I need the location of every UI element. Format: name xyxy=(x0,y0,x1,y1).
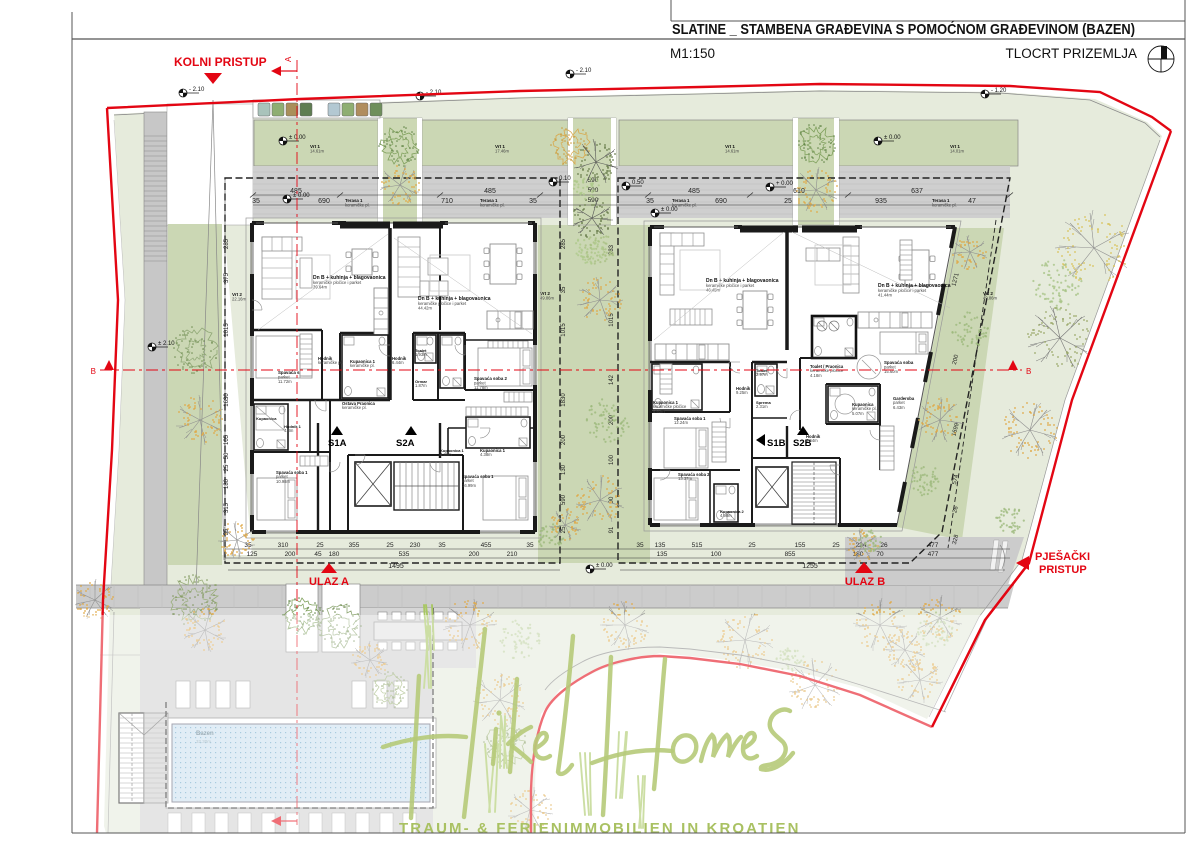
svg-text:355: 355 xyxy=(349,542,360,549)
svg-text:M1:150: M1:150 xyxy=(670,46,715,61)
svg-text:535: 535 xyxy=(399,551,410,558)
svg-text:- 2.10: - 2.10 xyxy=(189,87,205,93)
svg-text:± 0.00: ± 0.00 xyxy=(884,135,901,141)
svg-text:B: B xyxy=(1026,367,1031,376)
svg-text:35: 35 xyxy=(252,198,260,205)
svg-text:10.98m: 10.98m xyxy=(276,479,290,484)
svg-text:200: 200 xyxy=(469,551,480,558)
svg-text:690: 690 xyxy=(318,198,330,205)
svg-text:35: 35 xyxy=(526,542,534,549)
svg-text:± 0.00: ± 0.00 xyxy=(289,135,306,141)
svg-text:± 2.10: ± 2.10 xyxy=(158,341,175,347)
svg-text:1015: 1015 xyxy=(561,323,567,337)
svg-text:855: 855 xyxy=(785,551,796,558)
svg-text:47: 47 xyxy=(968,198,976,205)
svg-text:485: 485 xyxy=(484,188,496,195)
svg-text:25: 25 xyxy=(748,542,756,549)
svg-text:1015: 1015 xyxy=(609,313,615,327)
svg-text:25: 25 xyxy=(832,542,840,549)
svg-text:375: 375 xyxy=(224,272,230,283)
svg-text:710: 710 xyxy=(441,198,453,205)
svg-text:B: B xyxy=(91,367,96,376)
svg-text:35: 35 xyxy=(646,198,654,205)
svg-text:KOLNI PRISTUP: KOLNI PRISTUP xyxy=(174,55,267,69)
svg-text:1.87m: 1.87m xyxy=(415,383,427,388)
svg-text:1.93m: 1.93m xyxy=(415,352,427,357)
svg-text:16.99m: 16.99m xyxy=(462,483,476,488)
svg-text:25: 25 xyxy=(224,464,230,471)
svg-text:- 2.10: - 2.10 xyxy=(576,68,592,74)
svg-text:S1A: S1A xyxy=(328,438,347,449)
svg-text:135: 135 xyxy=(657,551,668,558)
svg-text:1630: 1630 xyxy=(224,393,230,407)
svg-text:180: 180 xyxy=(329,551,340,558)
svg-text:4.30m: 4.30m xyxy=(440,452,452,457)
svg-text:A: A xyxy=(284,56,293,62)
svg-text:keramičke pl.: keramičke pl. xyxy=(932,202,957,207)
svg-text:49.86m: 49.86m xyxy=(983,296,997,301)
svg-text:35: 35 xyxy=(529,198,537,205)
svg-text:6.64m: 6.64m xyxy=(806,438,818,443)
svg-text:477: 477 xyxy=(928,551,939,558)
svg-text:- 1.20: - 1.20 xyxy=(991,88,1007,94)
svg-text:2.97m: 2.97m xyxy=(756,372,768,377)
svg-text:485: 485 xyxy=(688,188,700,195)
svg-text:285: 285 xyxy=(561,238,567,249)
svg-text:26: 26 xyxy=(880,542,888,549)
svg-text:± 0.00: ± 0.00 xyxy=(661,207,678,213)
svg-text:+ 0.00: + 0.00 xyxy=(776,181,794,187)
svg-text:41.44m: 41.44m xyxy=(878,293,892,298)
svg-text:1255: 1255 xyxy=(802,563,818,570)
svg-text:0.50: 0.50 xyxy=(632,180,644,186)
svg-text:5.07m: 5.07m xyxy=(852,411,864,416)
svg-text:11.78m: 11.78m xyxy=(474,385,488,390)
svg-text:100: 100 xyxy=(609,454,615,465)
svg-text:14.01m: 14.01m xyxy=(950,149,964,154)
svg-text:ULAZ A: ULAZ A xyxy=(309,576,349,588)
svg-text:keramičke pl.: keramičke pl. xyxy=(480,202,505,207)
svg-text:PRISTUP: PRISTUP xyxy=(1039,564,1087,576)
svg-text:Kupaonica: Kupaonica xyxy=(256,416,277,421)
svg-text:50: 50 xyxy=(224,452,230,459)
svg-text:49.86m: 49.86m xyxy=(540,296,554,301)
svg-text:1495: 1495 xyxy=(388,563,404,570)
svg-text:44.42m: 44.42m xyxy=(418,306,432,311)
svg-text:17.46m: 17.46m xyxy=(495,149,509,154)
svg-text:690: 690 xyxy=(715,198,727,205)
svg-text:142: 142 xyxy=(609,374,615,385)
svg-text:11.72m: 11.72m xyxy=(278,379,292,384)
svg-text:935: 935 xyxy=(875,198,887,205)
svg-text:210: 210 xyxy=(507,551,518,558)
svg-text:315: 315 xyxy=(224,502,230,513)
svg-text:135: 135 xyxy=(655,542,666,549)
svg-text:45: 45 xyxy=(314,551,322,558)
svg-text:25: 25 xyxy=(316,542,324,549)
svg-text:35: 35 xyxy=(636,542,644,549)
svg-text:9.25m: 9.25m xyxy=(736,390,748,395)
svg-text:5.62m: 5.62m xyxy=(653,409,665,414)
svg-text:ULAZ B: ULAZ B xyxy=(845,576,885,588)
svg-text:4.38m: 4.38m xyxy=(480,452,492,457)
svg-text:477: 477 xyxy=(928,542,939,549)
svg-text:6.44m: 6.44m xyxy=(392,360,404,365)
svg-text:180: 180 xyxy=(224,478,230,489)
svg-text:4.18m: 4.18m xyxy=(810,373,822,378)
svg-text:TRAUM- & FERIENIMMOBILIEN IN K: TRAUM- & FERIENIMMOBILIEN IN KROATIEN xyxy=(399,820,801,837)
svg-text:0.10: 0.10 xyxy=(559,176,571,182)
svg-text:22.16m: 22.16m xyxy=(232,297,246,302)
svg-text:70: 70 xyxy=(876,551,884,558)
svg-text:105: 105 xyxy=(224,434,230,445)
svg-text:590: 590 xyxy=(561,494,567,505)
svg-text:200: 200 xyxy=(285,551,296,558)
svg-text:keramičke pl.: keramičke pl. xyxy=(342,405,367,410)
svg-text:515: 515 xyxy=(692,542,703,549)
svg-text:310: 310 xyxy=(278,542,289,549)
svg-text:130: 130 xyxy=(561,464,567,475)
svg-text:PJEŠAČKI: PJEŠAČKI xyxy=(1035,550,1090,563)
svg-text:35: 35 xyxy=(438,542,446,549)
svg-text:keramičke pl.: keramičke pl. xyxy=(345,202,370,207)
svg-text:155: 155 xyxy=(795,542,806,549)
svg-text:4.90m: 4.90m xyxy=(720,513,732,518)
svg-text:S2A: S2A xyxy=(396,438,415,449)
svg-text:230: 230 xyxy=(410,542,421,549)
svg-text:100: 100 xyxy=(711,551,722,558)
svg-text:39.64m: 39.64m xyxy=(313,285,327,290)
svg-text:13.37m: 13.37m xyxy=(678,476,692,481)
svg-text:14.61m: 14.61m xyxy=(310,149,324,154)
svg-text:35: 35 xyxy=(561,286,567,293)
svg-text:200: 200 xyxy=(561,434,567,445)
svg-text:SLATINE _ STAMBENA GRAĐEVINA S: SLATINE _ STAMBENA GRAĐEVINA S POMOĆNOM … xyxy=(672,20,1135,38)
svg-text:12.24m: 12.24m xyxy=(674,420,688,425)
svg-text:25: 25 xyxy=(784,198,792,205)
svg-text:2.31m: 2.31m xyxy=(756,404,768,409)
svg-text:125: 125 xyxy=(247,551,258,558)
svg-text:6.43m: 6.43m xyxy=(893,405,905,410)
svg-text:keramičke pl.: keramičke pl. xyxy=(318,360,343,365)
svg-text:14.61m: 14.61m xyxy=(725,149,739,154)
svg-text:± 0.00: ± 0.00 xyxy=(293,193,310,199)
svg-text:25: 25 xyxy=(386,542,394,549)
svg-text:1830: 1830 xyxy=(561,393,567,407)
svg-text:455: 455 xyxy=(481,542,492,549)
svg-text:± 0.00: ± 0.00 xyxy=(596,563,613,569)
svg-text:S1B: S1B xyxy=(767,438,786,449)
svg-text:4.8m: 4.8m xyxy=(284,428,294,433)
svg-text:285: 285 xyxy=(224,238,230,249)
svg-text:1015: 1015 xyxy=(224,323,230,337)
svg-text:91: 91 xyxy=(609,526,615,533)
svg-text:keramičke pl.: keramičke pl. xyxy=(350,363,375,368)
svg-text:TLOCRT PRIZEMLJA: TLOCRT PRIZEMLJA xyxy=(1005,46,1137,61)
svg-text:637: 637 xyxy=(911,188,923,195)
